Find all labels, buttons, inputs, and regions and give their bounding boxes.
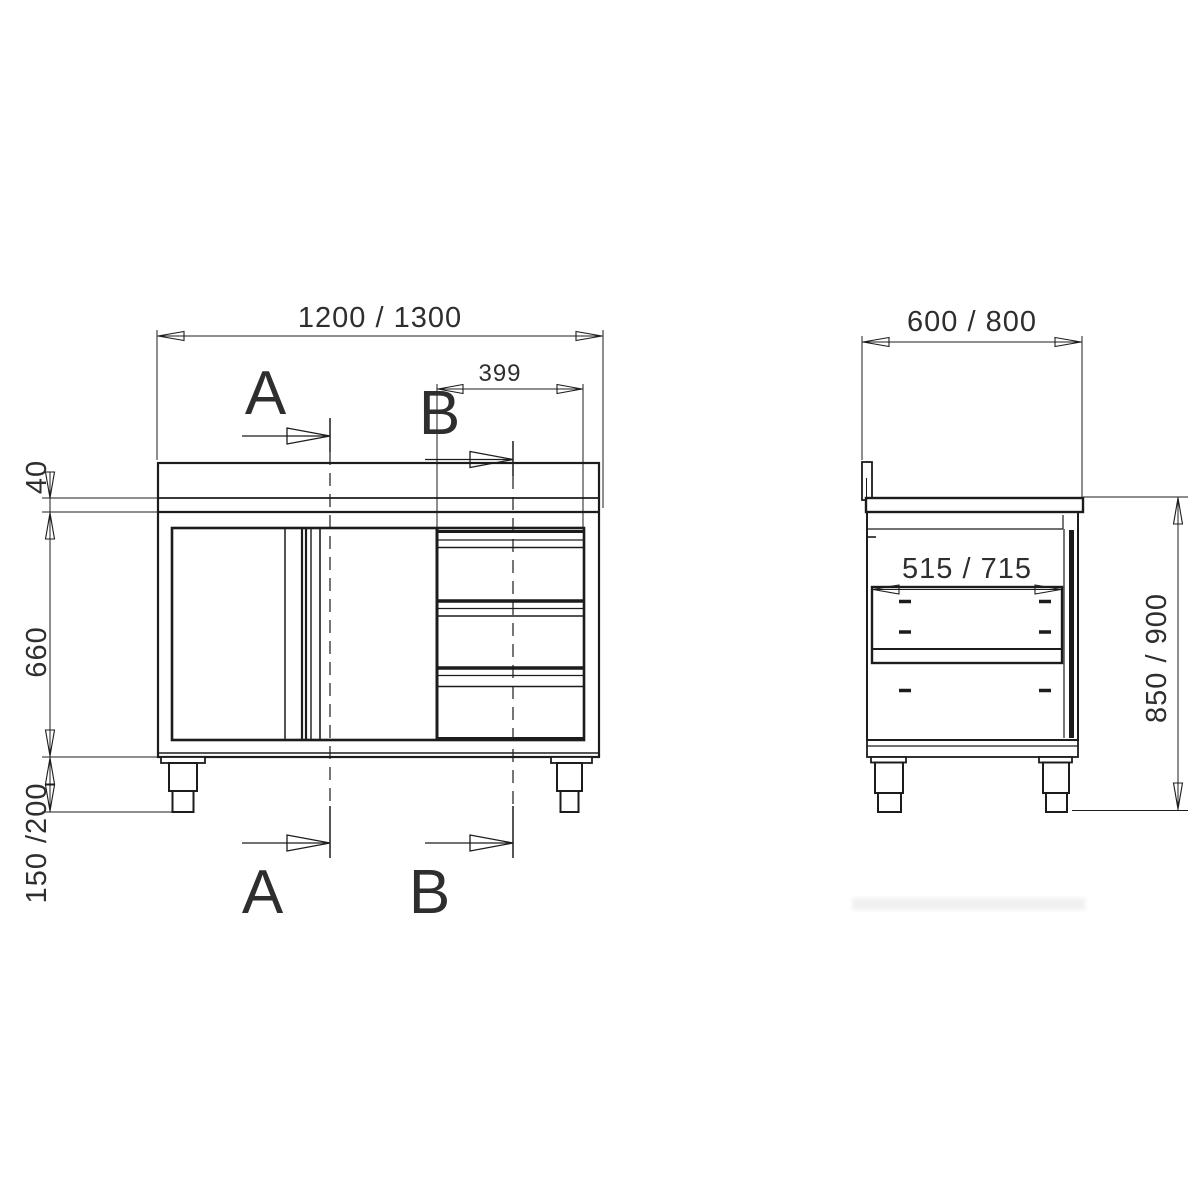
side-plinth [867, 740, 1078, 757]
watermark-smudge [852, 898, 1085, 910]
drawer-width-label: 399 [478, 360, 521, 387]
side-left-foot [878, 793, 901, 812]
front-cabinet-outline [158, 463, 599, 757]
side-worktop [866, 498, 1083, 512]
overall-width-label: 1200 / 1300 [298, 302, 462, 334]
overall-depth-label: 600 / 800 [907, 306, 1037, 338]
side-inner-shelf [872, 587, 1062, 691]
front-right-leg [557, 763, 582, 791]
front-body-outline [158, 463, 599, 757]
side-body-outline [867, 512, 1078, 740]
side-right-leg [1043, 763, 1069, 794]
dim-left-column: 40 660 150 /200 [21, 460, 174, 904]
shelf-box [872, 587, 1062, 663]
technical-drawing-page: 1200 / 1300 399 A A B [0, 0, 1200, 1200]
body-height-label: 660 [21, 626, 53, 677]
cabinet-technical-drawing: 1200 / 1300 399 A A B [0, 0, 1200, 1200]
section-b-label-top: B [419, 379, 461, 448]
worktop-thickness-label: 40 [21, 460, 53, 494]
side-view: 600 / 800 515 / 715 850 / 900 [852, 306, 1188, 910]
dim-overall-depth: 600 / 800 [862, 306, 1082, 497]
section-b-label-bottom: B [409, 858, 451, 927]
section-a-label-top: A [245, 359, 287, 428]
side-right-foot [1046, 793, 1067, 812]
front-right-foot [561, 791, 579, 812]
front-left-foot [173, 791, 194, 812]
leg-height-label: 150 /200 [21, 783, 53, 904]
side-left-leg [875, 763, 903, 794]
front-legs [161, 757, 592, 812]
dim-overall-height: 850 / 900 [1072, 497, 1188, 811]
side-legs [871, 757, 1072, 812]
side-cabinet-outline [862, 462, 1083, 757]
overall-height-label: 850 / 900 [1141, 593, 1173, 723]
inner-depth-label: 515 / 715 [902, 553, 1032, 585]
front-view: 1200 / 1300 399 A A B [21, 302, 603, 927]
front-left-leg [169, 763, 197, 791]
section-a-label-bottom: A [242, 858, 284, 927]
